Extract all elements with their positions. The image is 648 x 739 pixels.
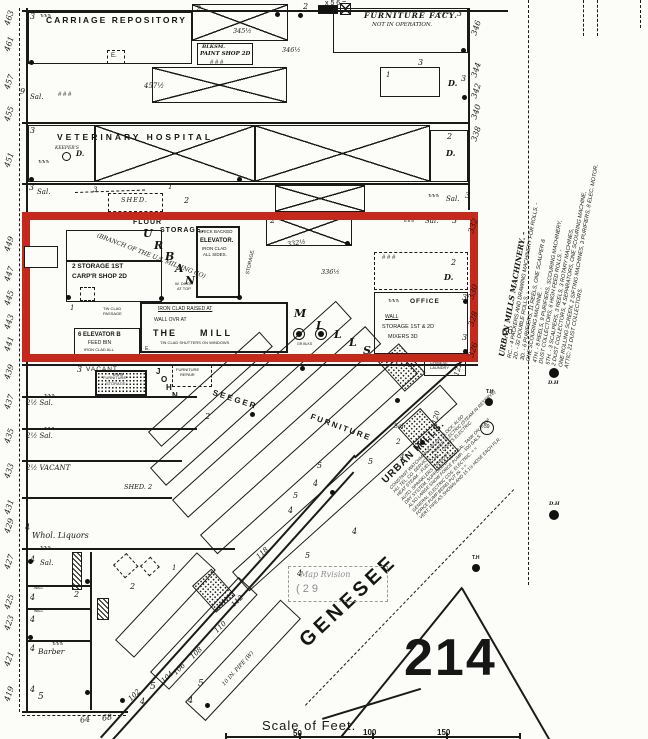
machinery-note-block: URBAN MILLS MACHINERY. - RC. - 4 PACKERS… bbox=[498, 11, 631, 368]
saloon-label: Sal. bbox=[30, 94, 43, 101]
veterinary-hospital-wing bbox=[255, 125, 430, 182]
junction-dot bbox=[461, 48, 466, 53]
floor-count: 4 bbox=[30, 594, 35, 602]
street-number: 419 bbox=[3, 685, 15, 702]
floor-count: 1 bbox=[168, 184, 172, 191]
saloon-label: Sal. bbox=[446, 196, 459, 203]
dwelling-label: D. bbox=[76, 150, 84, 157]
revision-stamp-number: ( 2 9 bbox=[296, 584, 318, 595]
crossed-warehouse bbox=[275, 185, 365, 212]
floor-count: 2 bbox=[196, 5, 201, 13]
junction-dot bbox=[420, 440, 425, 445]
furniture-repair-label2: REPAIR bbox=[180, 373, 195, 377]
floor-count: 3 bbox=[30, 13, 35, 21]
tap-hole-dot bbox=[472, 564, 480, 572]
floor-count: 2 bbox=[74, 591, 79, 599]
street-number: 340 bbox=[470, 103, 482, 120]
floor-count: 3 bbox=[77, 366, 82, 374]
street-number: 421 bbox=[3, 650, 15, 667]
street-number: 338 bbox=[470, 125, 482, 142]
veterinary-hospital-label: VETERINARY HOSPITAL bbox=[57, 133, 213, 142]
blacksmith-label: BLKSM. bbox=[202, 45, 225, 50]
street-number: 461 bbox=[3, 35, 15, 52]
shed-label: SHED. 2 bbox=[124, 484, 152, 491]
street-line bbox=[22, 548, 235, 550]
revision-stamp-text: Map Rvision bbox=[300, 571, 350, 579]
street-number: 443 bbox=[3, 313, 15, 330]
window-marks: # # # bbox=[58, 92, 71, 98]
drill-hole-dot bbox=[549, 510, 559, 520]
sanborn-map-sheet: x 5 6 = 463 461 457 455 451 449 447 445 … bbox=[0, 0, 648, 739]
junction-dot bbox=[395, 398, 400, 403]
street-number: 463 bbox=[3, 9, 15, 26]
junction-dot bbox=[250, 412, 255, 417]
lot-number: 345½ bbox=[233, 28, 252, 35]
floor-count: 2 bbox=[447, 133, 452, 141]
shed-e-label: E. bbox=[111, 53, 117, 59]
floor-count: 2 bbox=[130, 583, 135, 591]
drill-hole-dot bbox=[549, 368, 559, 378]
street-number: 64 bbox=[79, 715, 90, 724]
dwelling-label: D. bbox=[446, 149, 455, 157]
floor-count: 4 bbox=[30, 686, 35, 694]
street-number: 342 bbox=[470, 82, 482, 99]
street-number: 344 bbox=[470, 61, 482, 78]
vacant-label: 2½ VACANT bbox=[26, 465, 70, 472]
floor-count: 3 bbox=[93, 187, 97, 194]
junction-dot bbox=[237, 177, 242, 182]
tap-hole-dot bbox=[485, 398, 493, 406]
street-line bbox=[22, 122, 468, 124]
street-number: 427 bbox=[3, 553, 15, 570]
not-in-operation-label: NOT IN OPERATION. bbox=[372, 23, 432, 29]
match-line bbox=[640, 0, 641, 28]
street-number: 451 bbox=[3, 151, 15, 168]
wall-line bbox=[90, 552, 92, 710]
highlight-rectangle bbox=[22, 212, 478, 362]
street-line bbox=[19, 8, 20, 712]
street-line bbox=[322, 688, 421, 720]
laundry-label2: LAUNDRY bbox=[430, 366, 449, 370]
floor-count: 3 bbox=[418, 59, 423, 67]
floor-count: 3 bbox=[30, 127, 35, 135]
shed-building bbox=[140, 557, 160, 577]
crossed-warehouse bbox=[192, 4, 288, 41]
shed-building bbox=[113, 553, 138, 578]
building-label: CARRIAGE REPOSITORY bbox=[46, 16, 187, 25]
saloon-label: Sal. bbox=[394, 424, 406, 430]
scale-number: 150 bbox=[437, 729, 450, 737]
window-marks: # # # bbox=[210, 60, 223, 66]
tap-hole-label: T.H bbox=[472, 556, 480, 561]
window-marks: ъъъ bbox=[438, 11, 449, 17]
floor-count: 4 bbox=[25, 524, 30, 532]
street-line bbox=[22, 711, 128, 713]
scale-tick bbox=[225, 733, 227, 739]
floor-count: 5 bbox=[305, 552, 310, 560]
junction-dot bbox=[85, 690, 90, 695]
floor-count: 5 bbox=[38, 693, 44, 702]
window-marks: ъъъ bbox=[40, 14, 51, 20]
junction-dot bbox=[298, 13, 303, 18]
loading-porch bbox=[24, 246, 58, 268]
junction-dot bbox=[300, 366, 305, 371]
window-marks: ъъъ bbox=[52, 642, 63, 648]
john-letter: J bbox=[156, 368, 160, 376]
crossed-warehouse bbox=[152, 67, 287, 103]
scale-number: 50 bbox=[293, 730, 302, 738]
saloon-label: 2½ Sal. bbox=[26, 433, 53, 440]
street-number: 455 bbox=[3, 105, 15, 122]
junction-dot bbox=[120, 698, 125, 703]
street-number: 429 bbox=[3, 517, 15, 534]
junction-dot bbox=[85, 579, 90, 584]
saloon-label: Sal. bbox=[37, 189, 50, 196]
wall-line bbox=[22, 428, 197, 430]
street-line bbox=[468, 8, 470, 210]
saloon-label: 2½ Sal. bbox=[26, 400, 53, 407]
shed-label: SHED. bbox=[121, 197, 148, 204]
liquors-label: Whol. Liquors bbox=[32, 532, 89, 540]
floor-count: 2 bbox=[396, 439, 400, 446]
junction-dot bbox=[205, 703, 210, 708]
tap-hole-label: T.H bbox=[486, 390, 494, 395]
street-number: 449 bbox=[3, 235, 15, 252]
street-number: 441 bbox=[3, 335, 15, 352]
drill-hole-label: D.H bbox=[549, 502, 560, 507]
floor-count: 4 bbox=[288, 507, 293, 515]
street-number: 439 bbox=[3, 363, 15, 380]
barber-label: Barber bbox=[38, 648, 64, 656]
fire-apparatus-icon bbox=[62, 152, 71, 161]
floor-count: 4 bbox=[352, 528, 357, 536]
floor-count: 5 bbox=[317, 462, 322, 470]
floor-count: 2 bbox=[184, 197, 189, 205]
floor-count: 2 bbox=[205, 413, 210, 421]
saloon-label: Sal. bbox=[40, 560, 53, 567]
floor-count: 1 bbox=[172, 565, 176, 572]
floor-count: 1 bbox=[386, 72, 390, 79]
street-number: 431 bbox=[3, 498, 15, 515]
floor-count: 9 bbox=[20, 88, 25, 96]
window-marks: ъъъ bbox=[38, 160, 49, 166]
street-number: 425 bbox=[3, 593, 15, 610]
street-number: 346 bbox=[470, 19, 482, 36]
wall-line bbox=[22, 460, 182, 462]
paint-shop-label: PAINT SHOP 2D bbox=[200, 52, 250, 58]
window-marks: ъъъ bbox=[428, 194, 439, 200]
street-number: 435 bbox=[3, 427, 15, 444]
street-number: 447 bbox=[3, 265, 15, 282]
floor-count: 4 bbox=[313, 480, 318, 488]
floor-count: 2 bbox=[303, 3, 308, 11]
floor-count: 3 bbox=[461, 75, 466, 83]
scale-tick bbox=[519, 733, 521, 739]
scale-number: 100 bbox=[363, 729, 376, 737]
junction-dot bbox=[275, 12, 280, 17]
block-number: 214 bbox=[404, 632, 497, 684]
elevator-shaft bbox=[72, 552, 82, 590]
furniture-storage-label2: STORAGE bbox=[106, 382, 126, 386]
furniture-storage-label: FURNITURE bbox=[103, 376, 126, 380]
street-number: 68 bbox=[101, 713, 112, 722]
street-number: 437 bbox=[3, 393, 15, 410]
junction-dot bbox=[29, 177, 34, 182]
junction-dot bbox=[28, 559, 33, 564]
floor-count: 5 bbox=[368, 458, 373, 466]
floor-count: 4 bbox=[30, 645, 35, 653]
street-number: 445 bbox=[3, 289, 15, 306]
lot-number: 346½ bbox=[282, 47, 301, 54]
junction-dot bbox=[28, 635, 33, 640]
floor-count: 3 bbox=[465, 192, 470, 200]
junction-dot bbox=[462, 95, 467, 100]
street-number: 457 bbox=[3, 73, 15, 90]
wall-note: WALL bbox=[34, 610, 43, 614]
wall-line bbox=[22, 497, 172, 499]
floor-count: 3 bbox=[29, 184, 34, 192]
drill-hole-label: D.H bbox=[548, 381, 559, 386]
dwelling-label: D. bbox=[448, 79, 457, 87]
street-number: 423 bbox=[3, 614, 15, 631]
floor-count: 4 bbox=[30, 616, 35, 624]
junction-dot bbox=[330, 490, 335, 495]
floor-count: 5 bbox=[293, 492, 298, 500]
john-letter: H bbox=[166, 384, 172, 392]
floor-count: 3 bbox=[457, 10, 462, 18]
street-number: 433 bbox=[3, 462, 15, 479]
street-line bbox=[22, 183, 468, 185]
wall-note: WALL bbox=[34, 587, 43, 591]
junction-dot bbox=[29, 60, 34, 65]
wall-line bbox=[22, 396, 197, 398]
stairs bbox=[97, 598, 109, 620]
scale-label: Scale of Feet. bbox=[262, 719, 356, 732]
